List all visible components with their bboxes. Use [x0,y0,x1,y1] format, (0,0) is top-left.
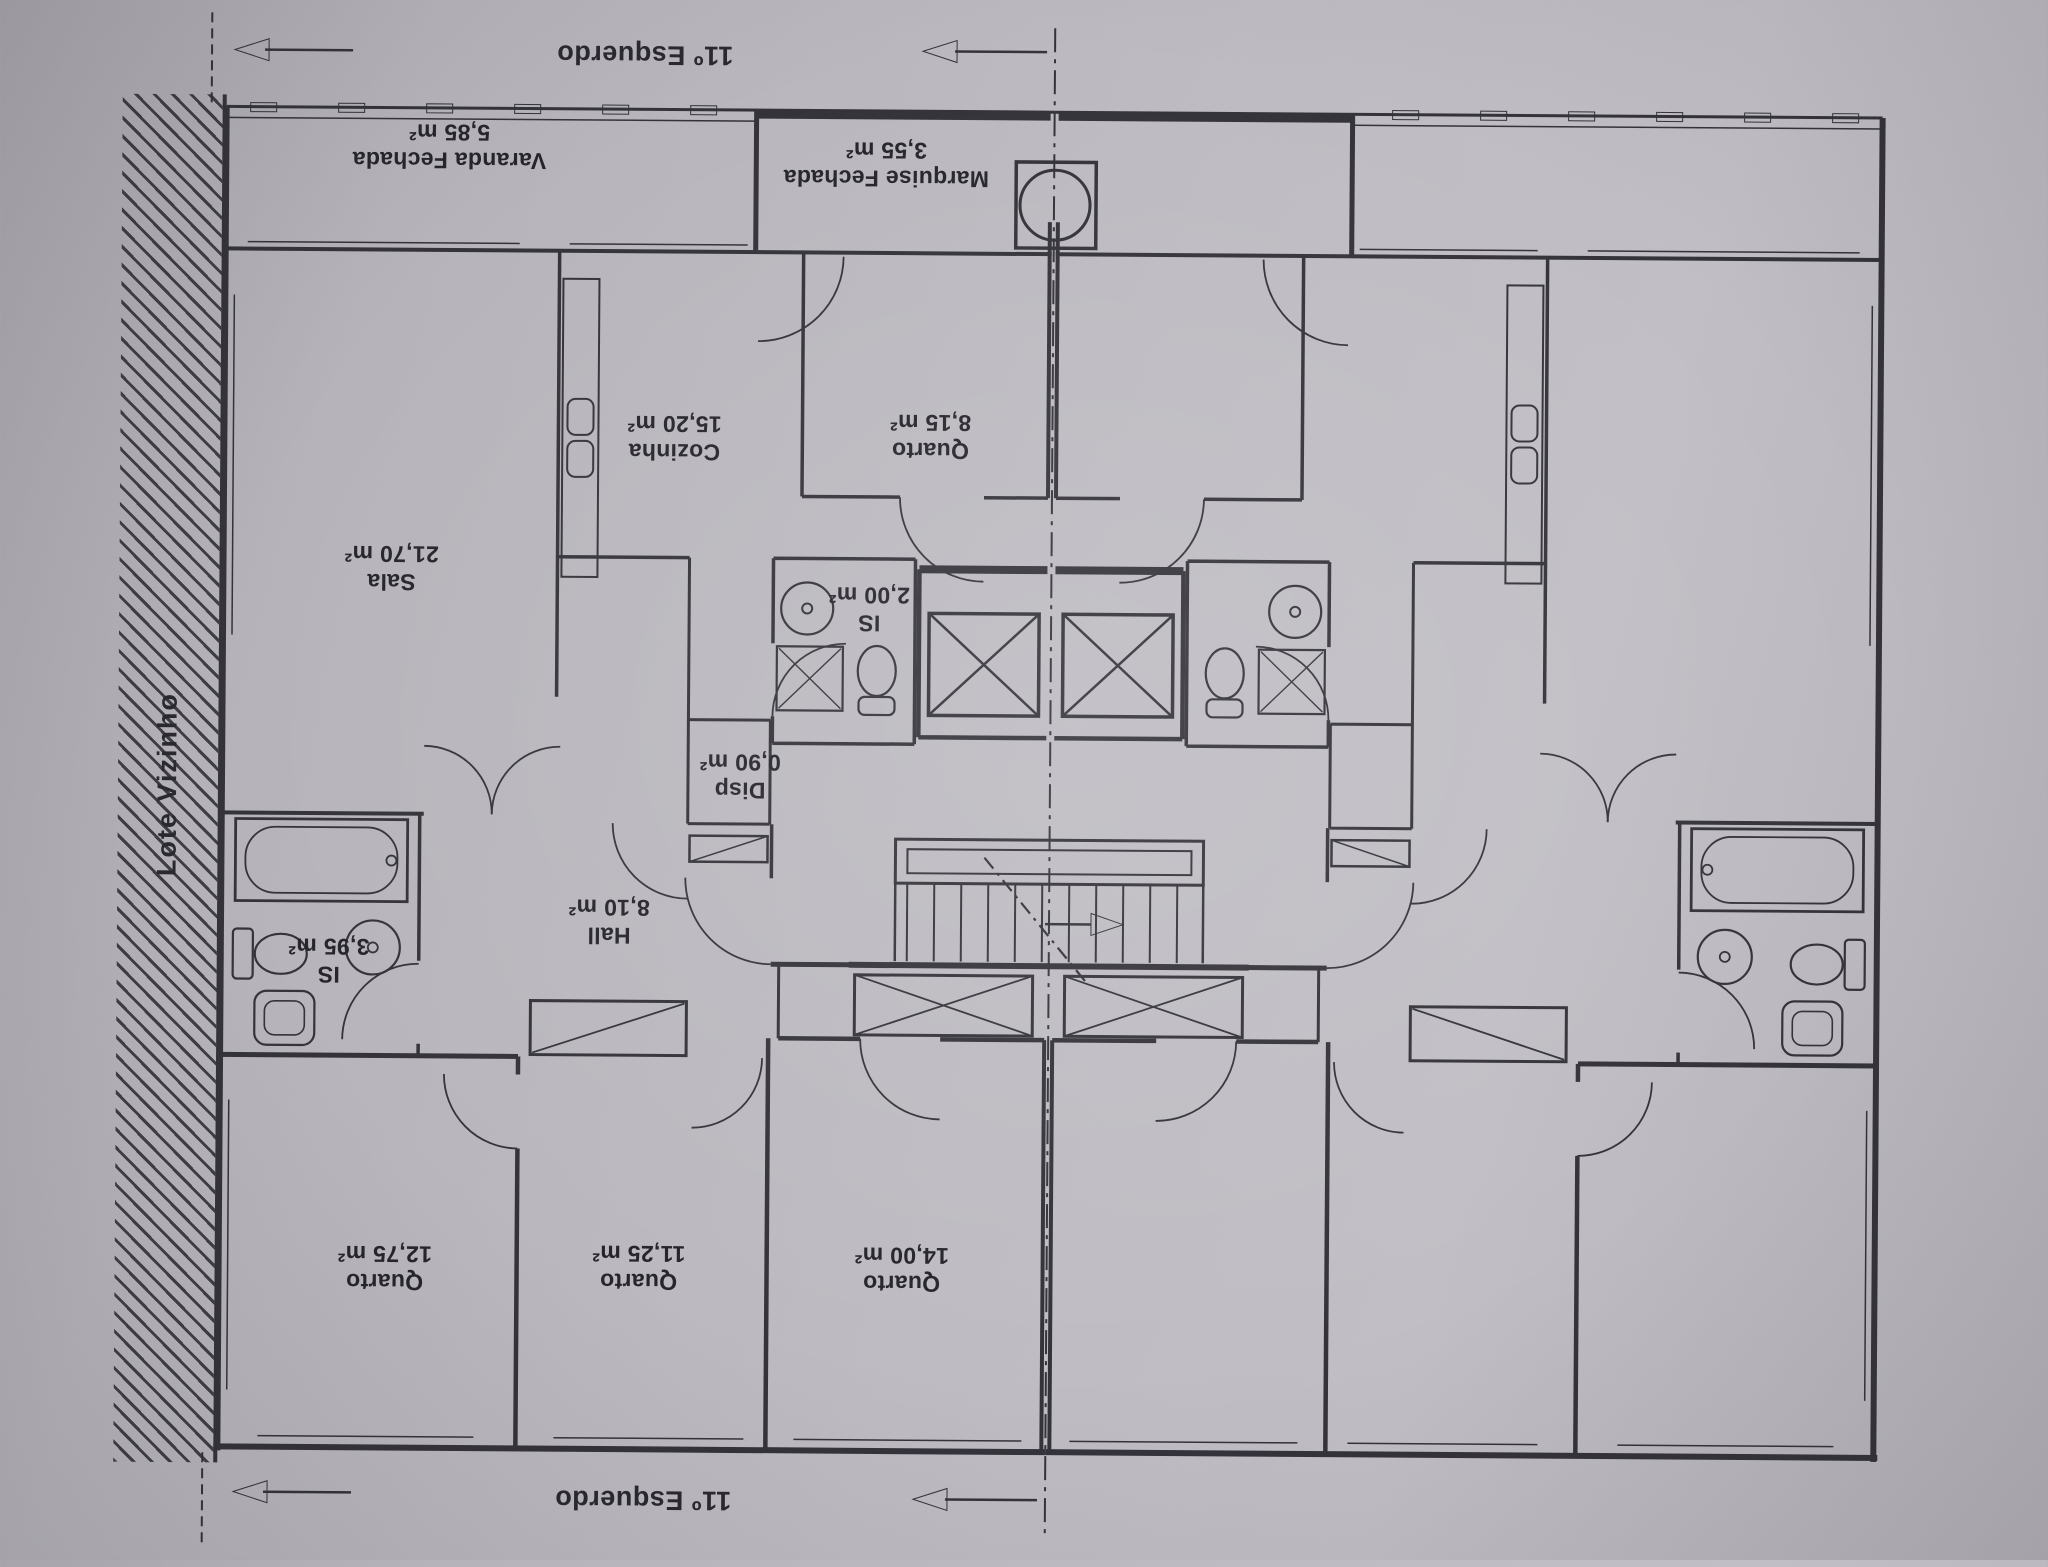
room-label-marquise: Marquise Fechada3,55 m² [783,136,989,193]
boundary-and-arrows [202,12,1048,1552]
bathtub-icon [235,818,408,901]
unit-extent-arrow-icon [233,1480,267,1502]
neighbor-lot-label: Lote Vizinho [152,692,183,876]
room-label-is-large: IS3,95 m² [288,932,370,988]
room-label-cozinha: Cozinha15,20 m² [627,410,722,466]
room-label-hall: Hall8,10 m² [568,893,650,949]
unit-label-top: 11º Esquerdo [557,39,734,70]
room-label-quarto-mid: Quarto11,25 m² [592,1239,686,1295]
room-label-disp: Disp0,90 m² [699,748,781,804]
double-door-arc [424,746,492,814]
sink-icon [781,582,833,634]
bidet-icon [254,991,314,1045]
room-label-quarto-right: Quarto14,00 m² [854,1241,949,1297]
unit-label-bottom: 11º Esquerdo [555,1484,732,1515]
sink-drain-icon [802,603,812,613]
room-label-sala: Sala21,70 m² [344,540,439,596]
door-arc [758,256,844,342]
entrance-door-arc [685,878,772,965]
toilet-tank-icon [233,928,253,978]
elevator-shaft-icon [928,613,1039,716]
apartment-unit-right-mirrored [1045,108,1886,1462]
toilet-base-icon [858,697,894,715]
room-label-quarto-left: Quarto12,75 m² [337,1240,432,1296]
door-arc [692,1058,762,1128]
kitchen-stove-icon [567,441,593,477]
unit-extent-arrow-icon [913,1488,947,1510]
door-arc [612,823,688,899]
toilet-icon [858,646,896,696]
unit-extent-arrow-icon [235,38,269,60]
floor-plan-linework [0,0,2048,1567]
unit-extent-arrow-icon [923,40,957,62]
plan-canvas: 11º Esquerdo 11º Esquerdo Lote Vizinho V… [0,0,2048,1567]
room-label-varanda: Varanda Fechada5,85 m² [352,118,546,175]
scanned-floor-plan-sheet: 11º Esquerdo 11º Esquerdo Lote Vizinho V… [0,0,2048,1560]
room-label-is-small: IS2,00 m² [828,581,910,637]
double-door-arc [492,746,560,814]
door-arc [860,1039,941,1120]
kitchen-sink-icon [567,399,593,435]
door-arc [443,1074,518,1149]
closet-icon [530,1001,686,1056]
room-label-quarto-top: Quarto8,15 m² [890,408,972,464]
